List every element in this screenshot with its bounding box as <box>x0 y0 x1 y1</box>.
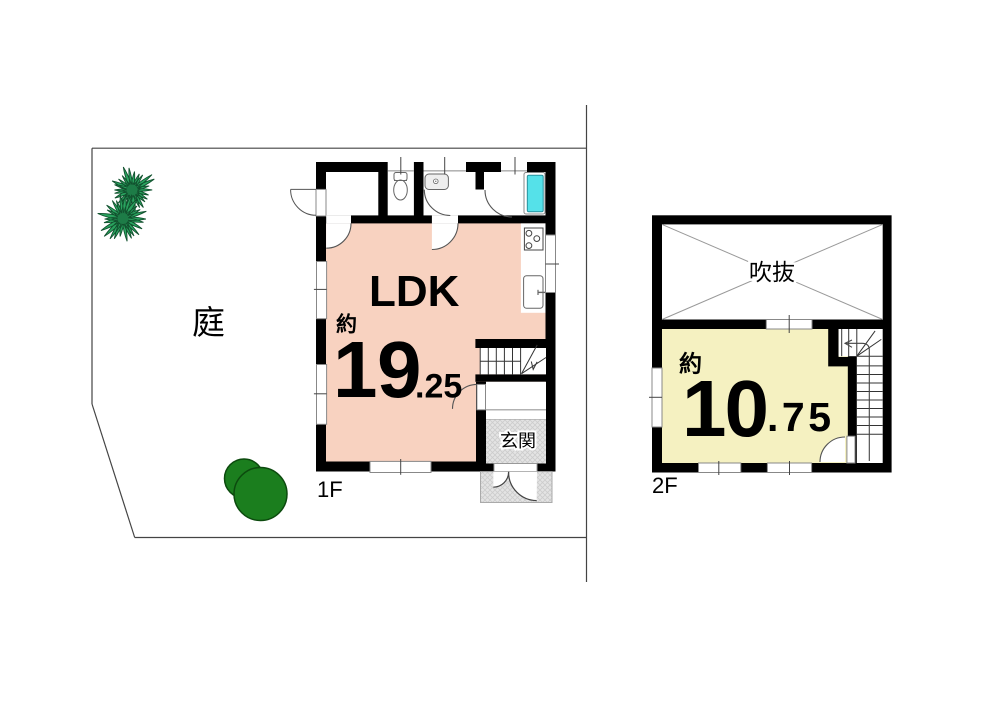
svg-text:1F: 1F <box>317 477 343 502</box>
svg-text:LDK: LDK <box>369 267 460 316</box>
svg-text:10: 10 <box>682 364 767 453</box>
svg-text:.25: .25 <box>415 368 462 406</box>
svg-text:玄関: 玄関 <box>500 431 536 451</box>
svg-text:.75: .75 <box>767 394 835 440</box>
svg-text:2F: 2F <box>652 473 678 498</box>
svg-text:19: 19 <box>333 325 421 414</box>
svg-text:吹抜: 吹抜 <box>749 259 795 285</box>
svg-text:庭: 庭 <box>192 304 225 341</box>
